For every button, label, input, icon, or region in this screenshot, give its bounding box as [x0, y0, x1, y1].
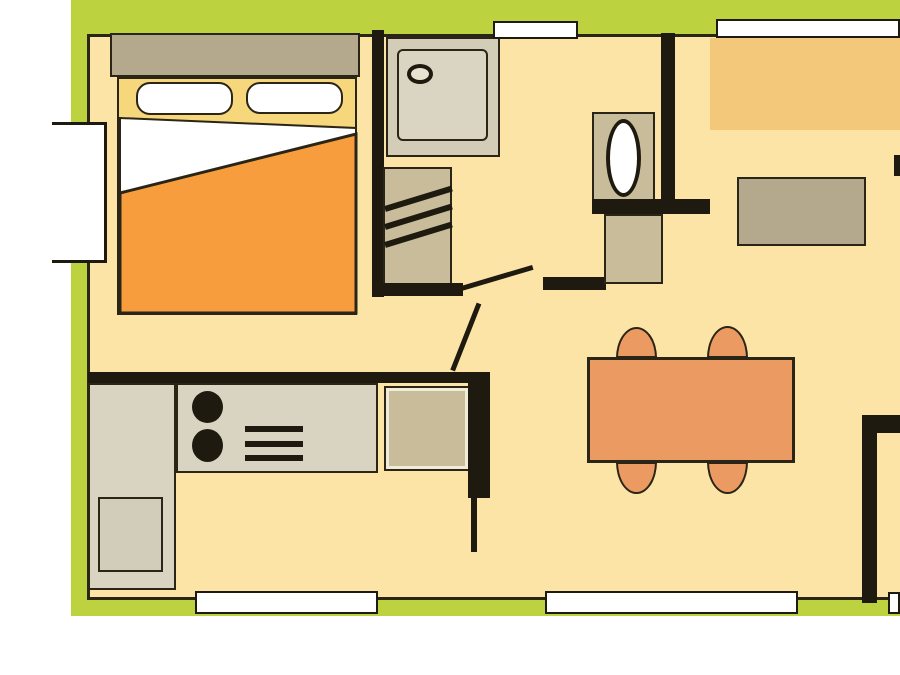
- bed-pillow-right: [246, 82, 343, 114]
- wall-right-edge-stub: [894, 155, 900, 176]
- door-bottom-entry: [545, 591, 798, 614]
- window-top-small: [493, 21, 578, 39]
- hob-grill-bar-2: [245, 441, 303, 447]
- wall-wc-bottom: [592, 199, 710, 214]
- dining-table: [587, 357, 795, 463]
- bench-seat: [710, 38, 900, 130]
- toilet-bowl: [606, 119, 641, 197]
- shower-basin: [397, 49, 488, 141]
- bed-headboard: [110, 33, 360, 77]
- wall-wardrobe-bottom: [372, 283, 463, 296]
- deck-left-strip-lower: [71, 263, 87, 616]
- wall-kitchen-stub: [468, 372, 490, 498]
- sideboard: [737, 177, 866, 246]
- hob-burner-2: [192, 429, 223, 462]
- window-left: [52, 122, 107, 263]
- window-bottom-1: [195, 591, 378, 614]
- wall-right-doorway-vert: [862, 415, 877, 603]
- wall-hallway: [543, 277, 606, 290]
- floor-plan-canvas: [0, 0, 900, 675]
- shower-drain: [407, 64, 433, 84]
- wall-kitchen-bar: [88, 372, 490, 383]
- wall-wc-right: [661, 33, 675, 214]
- deck-left-strip-upper: [71, 0, 87, 122]
- hob-burner-1: [192, 391, 223, 423]
- hob-grill-bar-1: [245, 426, 303, 432]
- kitchen-sink-unit: [384, 386, 470, 471]
- kitchen-fridge: [98, 497, 163, 572]
- wall-kitchen-thin: [471, 498, 477, 552]
- window-top-large: [716, 19, 900, 38]
- wc-vanity: [604, 214, 663, 284]
- hob-grill-bar-3: [245, 455, 303, 461]
- window-bottom-2: [888, 592, 900, 614]
- bed-pillow-left: [136, 82, 233, 115]
